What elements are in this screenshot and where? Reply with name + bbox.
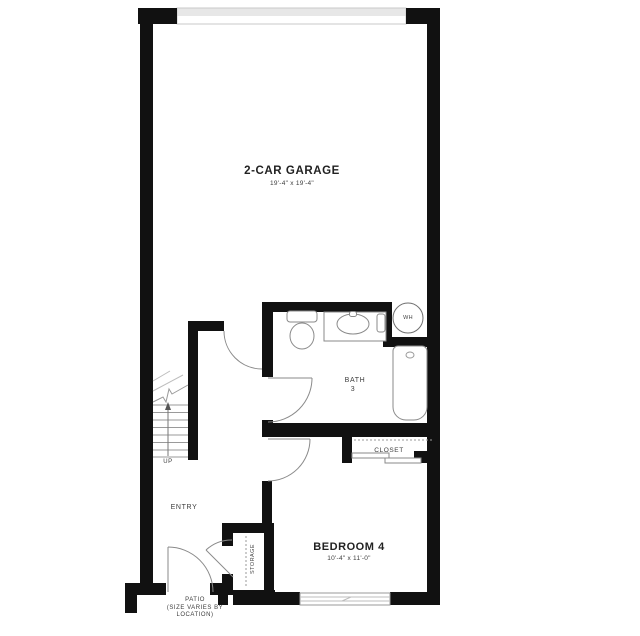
bedroom-room-label: BEDROOM 4 [313,541,385,553]
water-heater-label: WH [403,315,413,321]
front-door-swing [168,547,213,592]
bath-room-number: 3 [351,386,356,394]
patio-label: PATIO [185,597,205,604]
patio-note-line1: (SIZE VARIES BY [167,605,223,612]
bath-door-swing [268,378,312,422]
sink-vanity [324,312,386,342]
bedroom-door-swing [268,439,310,481]
patio-note-line2: LOCATION) [176,612,213,619]
closet-label: CLOSET [374,447,404,454]
garage-room-label: 2-CAR GARAGE [244,165,340,177]
bath-room-label: BATH [345,377,366,385]
entry-label: ENTRY [171,504,198,512]
closet-sliding-doors [352,453,421,463]
bathtub [393,346,427,420]
toilet [287,311,317,349]
garage-entry-door-swing [224,331,262,369]
stair-direction-arrow-icon [165,402,171,410]
floor-plan: 2-CAR GARAGE 19'-4" x 19'-4" BATH 3 WH C… [0,0,640,636]
storage-label: STORAGE [250,544,256,574]
staircase [153,371,188,457]
bedroom-room-dims: 10'-4" x 11'-0" [327,555,370,563]
bedroom-window [300,593,390,605]
garage-room-dims: 19'-4" x 19'-4" [270,180,314,188]
stairs-up-label: UP [163,459,172,466]
garage-door [177,8,406,24]
